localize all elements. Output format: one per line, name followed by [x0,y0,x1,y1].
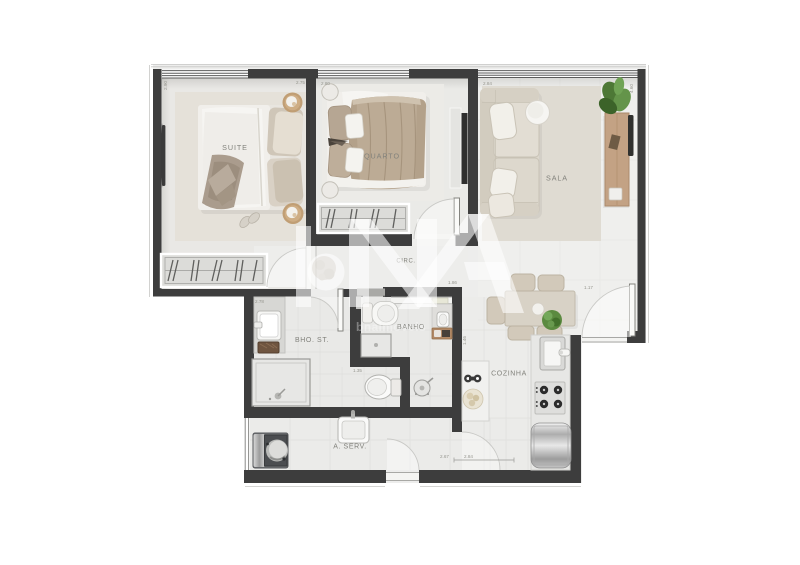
svg-text:BHO. ST.: BHO. ST. [295,337,329,344]
svg-text:1.35: 1.35 [353,368,362,373]
svg-text:SUITE: SUITE [222,143,248,152]
svg-text:2.84: 2.84 [483,81,492,86]
svg-text:2.67: 2.67 [440,454,449,459]
svg-text:2.80: 2.80 [321,81,330,86]
svg-text:QUARTO: QUARTO [364,152,400,161]
svg-text:1.86: 1.86 [448,280,457,285]
svg-text:A. SERV.: A. SERV. [333,444,367,451]
svg-text:2.75: 2.75 [296,80,305,85]
svg-text:SALA: SALA [546,174,568,183]
svg-text:2.90: 2.90 [163,81,168,90]
svg-text:2.84: 2.84 [464,454,473,459]
svg-text:2.78: 2.78 [255,299,264,304]
svg-text:bnaimoveis: bnaimoveis [356,320,426,334]
svg-text:1.17: 1.17 [584,285,593,290]
svg-text:COZINHA: COZINHA [491,371,527,378]
svg-text:4.60: 4.60 [629,84,634,93]
svg-text:1.46: 1.46 [462,336,467,345]
